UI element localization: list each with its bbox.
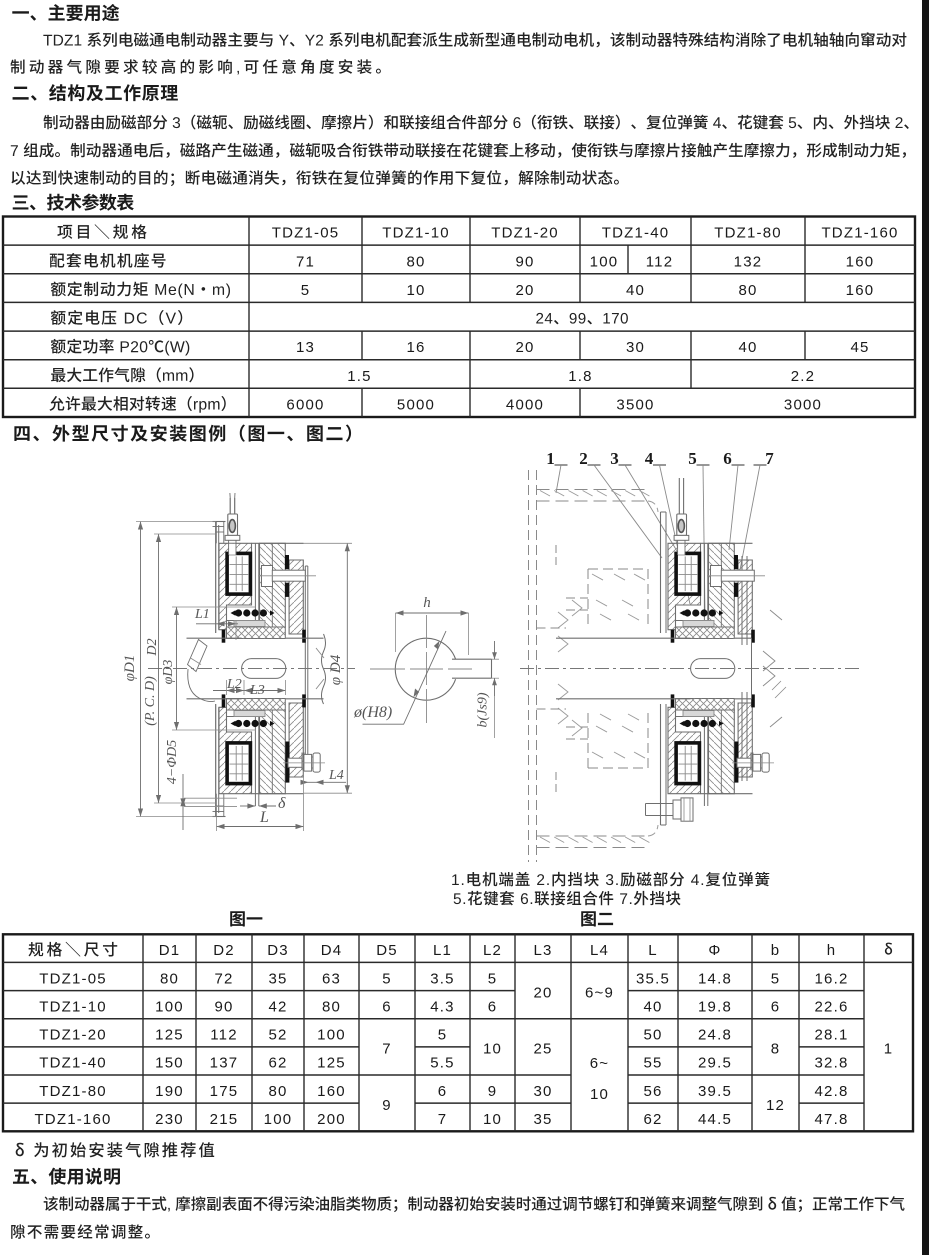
svg-text:40: 40 [643,998,662,1015]
svg-text:9: 9 [488,1083,498,1100]
svg-text:62: 62 [268,1055,287,1072]
svg-text:80: 80 [738,282,757,299]
svg-text:20: 20 [533,984,552,1001]
svg-text:10: 10 [483,1041,502,1058]
svg-text:D3: D3 [267,942,289,959]
svg-text:72: 72 [214,970,233,987]
svg-text:L3: L3 [249,683,265,698]
svg-text:ø(H8): ø(H8) [353,704,392,721]
svg-text:200: 200 [317,1111,346,1128]
svg-text:φD3: φD3 [161,660,176,685]
svg-text:80: 80 [268,1083,287,1100]
svg-text:7: 7 [382,1041,392,1058]
svg-text:6: 6 [382,998,392,1015]
svg-text:56: 56 [643,1083,662,1100]
svg-text:16.2: 16.2 [815,970,849,987]
svg-text:L4: L4 [590,942,609,959]
svg-text:6~9: 6~9 [585,984,614,1001]
svg-text:4: 4 [645,449,654,468]
svg-text:112: 112 [646,253,674,270]
svg-text:7: 7 [438,1111,448,1128]
svg-text:100: 100 [155,998,184,1015]
svg-text:55: 55 [643,1055,662,1072]
svg-text:δ: δ [278,795,286,812]
svg-text:D5: D5 [376,942,398,959]
svg-text:9: 9 [382,1097,392,1114]
svg-text:90: 90 [214,998,233,1015]
svg-text:10: 10 [590,1086,609,1103]
svg-text:L: L [648,942,658,959]
svg-text:175: 175 [210,1083,239,1100]
svg-text:42.8: 42.8 [815,1083,849,1100]
svg-text:100: 100 [264,1111,293,1128]
svg-text:137: 137 [210,1055,239,1072]
svg-text:6~: 6~ [590,1055,610,1072]
svg-text:TDZ1-10: TDZ1-10 [382,225,450,242]
svg-text:13: 13 [296,339,315,356]
svg-text:62: 62 [643,1111,662,1128]
svg-text:100: 100 [590,253,619,270]
svg-text:5: 5 [438,1027,448,1044]
svg-text:10: 10 [483,1111,502,1128]
svg-text:30: 30 [533,1083,552,1100]
svg-text:h: h [423,595,431,611]
svg-text:6: 6 [438,1083,448,1100]
svg-text:2: 2 [579,449,588,468]
svg-text:5: 5 [771,970,781,987]
svg-text:6: 6 [771,998,781,1015]
svg-text:160: 160 [846,282,875,299]
svg-text:8: 8 [771,1041,781,1058]
svg-text:63: 63 [322,970,341,987]
svg-text:125: 125 [317,1055,346,1072]
svg-text:215: 215 [210,1111,239,1128]
svg-text:4000: 4000 [506,397,544,414]
svg-text:7: 7 [765,449,774,468]
svg-text:4−ΦD5: 4−ΦD5 [165,740,180,784]
svg-text:160: 160 [846,253,875,270]
svg-text:29.5: 29.5 [698,1055,732,1072]
svg-text:TDZ1-20: TDZ1-20 [39,1027,107,1044]
svg-text:L2: L2 [483,942,502,959]
svg-text:6: 6 [488,998,498,1015]
svg-text:10: 10 [406,282,425,299]
svg-text:1: 1 [884,1041,894,1058]
svg-text:D2: D2 [145,638,160,656]
svg-text:80: 80 [406,253,425,270]
svg-text:5: 5 [382,970,392,987]
svg-text:35: 35 [533,1111,552,1128]
svg-text:44.5: 44.5 [698,1111,732,1128]
svg-text:6000: 6000 [286,397,324,414]
svg-text:TDZ1-80: TDZ1-80 [714,225,782,242]
svg-text:L4: L4 [328,768,344,783]
svg-text:L: L [259,809,269,826]
svg-text:4.3: 4.3 [430,998,454,1015]
svg-text:φ D4: φ D4 [328,654,344,685]
svg-text:TDZ1-160: TDZ1-160 [821,225,898,242]
svg-text:(P. C. D): (P. C. D) [143,676,158,726]
svg-text:TDZ1-160: TDZ1-160 [34,1111,111,1128]
svg-text:80: 80 [322,998,341,1015]
svg-text:50: 50 [643,1027,662,1044]
svg-text:3500: 3500 [616,397,654,414]
svg-text:52: 52 [268,1027,287,1044]
svg-text:TDZ1-20: TDZ1-20 [491,225,559,242]
svg-text:5000: 5000 [397,397,435,414]
svg-text:100: 100 [317,1027,346,1044]
svg-text:28.1: 28.1 [815,1027,849,1044]
svg-text:L2: L2 [226,677,242,692]
svg-text:h: h [827,942,837,959]
svg-text:TDZ1-10: TDZ1-10 [39,998,107,1015]
svg-text:TDZ1-40: TDZ1-40 [602,225,670,242]
svg-text:125: 125 [155,1027,184,1044]
svg-text:19.8: 19.8 [698,998,732,1015]
svg-text:39.5: 39.5 [698,1083,732,1100]
svg-text:42: 42 [268,998,287,1015]
svg-text:b: b [771,942,781,959]
svg-text:D4: D4 [321,942,343,959]
svg-text:132: 132 [734,253,763,270]
svg-text:5: 5 [488,970,498,987]
svg-text:16: 16 [406,339,425,356]
svg-text:5: 5 [688,449,697,468]
svg-text:25: 25 [533,1041,552,1058]
svg-text:12: 12 [766,1097,785,1114]
svg-text:90: 90 [515,253,534,270]
svg-text:D1: D1 [159,942,181,959]
svg-text:3.5: 3.5 [430,970,454,987]
svg-text:71: 71 [296,253,315,270]
svg-text:φD1: φD1 [122,655,138,682]
svg-text:190: 190 [155,1083,184,1100]
svg-text:TDZ1-80: TDZ1-80 [39,1083,107,1100]
svg-text:D2: D2 [213,942,235,959]
svg-text:150: 150 [155,1055,184,1072]
svg-text:L1: L1 [433,942,452,959]
svg-text:TDZ1-05: TDZ1-05 [39,970,107,987]
svg-text:20: 20 [515,339,534,356]
svg-text:b(Js9): b(Js9) [476,692,491,727]
svg-text:5.5: 5.5 [430,1055,454,1072]
svg-text:40: 40 [626,282,645,299]
svg-text:24.8: 24.8 [698,1027,732,1044]
svg-text:230: 230 [155,1111,184,1128]
svg-text:Φ: Φ [708,942,721,959]
svg-text:3: 3 [610,449,619,468]
svg-text:6: 6 [723,449,732,468]
svg-text:1.5: 1.5 [347,368,371,385]
svg-text:1: 1 [546,449,555,468]
svg-text:2.2: 2.2 [791,368,815,385]
svg-text:5: 5 [301,282,311,299]
svg-text:47.8: 47.8 [815,1111,849,1128]
svg-text:1.8: 1.8 [568,368,592,385]
svg-text:TDZ1-05: TDZ1-05 [272,225,340,242]
svg-text:45: 45 [850,339,869,356]
svg-text:35.5: 35.5 [636,970,670,987]
svg-text:30: 30 [626,339,645,356]
svg-text:35: 35 [268,970,287,987]
svg-text:112: 112 [210,1027,238,1044]
svg-text:80: 80 [160,970,179,987]
svg-text:3000: 3000 [784,397,822,414]
svg-text:L3: L3 [533,942,552,959]
svg-text:L1: L1 [194,607,210,622]
svg-text:160: 160 [317,1083,346,1100]
svg-text:TDZ1-40: TDZ1-40 [39,1055,107,1072]
svg-text:22.6: 22.6 [815,998,849,1015]
svg-text:14.8: 14.8 [698,970,732,987]
svg-text:32.8: 32.8 [815,1055,849,1072]
svg-text:40: 40 [738,339,757,356]
svg-text:20: 20 [515,282,534,299]
